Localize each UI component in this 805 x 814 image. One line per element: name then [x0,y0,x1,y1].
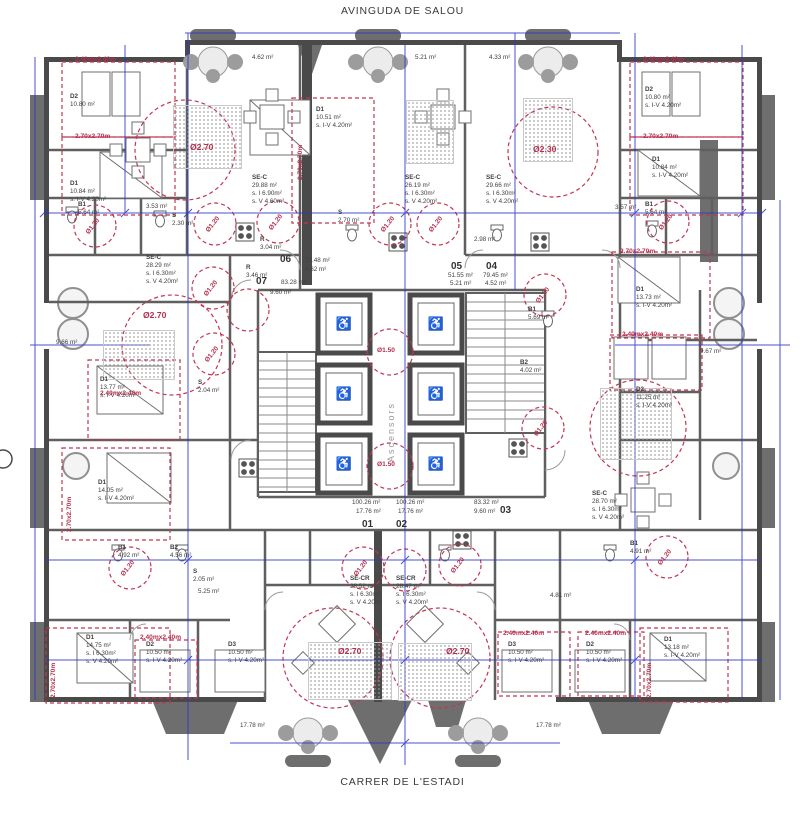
bed-size-tag: 2.40mx2.40m [75,56,116,63]
room-label: B15.64 m² [78,201,99,217]
wheelchair-icon: ♿ [334,386,354,402]
room-label: D113.73 m²s. I-V 4.20m² [636,286,672,310]
rug-area [406,100,454,164]
room-label: 2.98 m² [474,236,495,244]
unit-number: 01 [362,519,373,530]
bed-size-tag: 2.40mx2.40m [100,390,141,397]
unit-number: 05 [451,261,462,272]
room-label: SE-C26.19 m²s. I 6.30m²s. V 4.20m² [405,174,437,205]
unit-terrace-area: 4.62 m² [305,266,326,273]
unit-area: 100.26 m² [396,499,424,506]
wheelchair-icon: ♿ [426,386,446,402]
room-label: D110.84 m²s. I-V 4.20m² [652,156,688,180]
room-label: D114.05 m²s. I-V 4.20m² [98,479,134,503]
bed-size-tag: 2.70x2.70m [643,133,678,140]
room-label: S2.04 m² [198,379,219,395]
room-label: SE-CR28.52 m²s. I 6.30m²s. V 4.20m² [350,575,382,606]
clearance-label: Ø1.50 [377,461,395,468]
bed-size-tag: 2.70x2.70m [646,663,653,698]
room-label: 5.25 m² [198,588,219,596]
room-label: SE-C29.88 m²s. I 6.90m²s. V 4.60m² [252,174,284,205]
room-label: 9.67 m² [700,348,721,356]
room-label: D310.50 m²s. I-V 4.20m² [508,641,544,665]
unit-terrace-area: 17.76 m² [356,508,381,515]
street-name-top: AVINGUDA DE SALOU [0,5,805,17]
rug-area [103,330,175,380]
room-label: B15.69 m² [528,306,549,322]
bed-size-tag: 2.40mx2.40m [585,630,626,637]
room-label: S2.30 m² [172,212,193,228]
room-label: B14.92 m² [118,544,139,560]
unit-area: 79.45 m² [483,272,508,279]
elevator-lobby-label: Ascensors [386,402,396,462]
room-label: SE-C29.66 m²s. I 6.30m²s. V 4.20m² [486,174,518,205]
room-label: 3.53 m² [146,203,167,211]
room-label: R3.46 m² [246,264,267,280]
wheelchair-icon: ♿ [334,456,354,472]
bed-size-tag: 2.40mx2.40m [622,331,663,338]
street-name-bottom: CARRER DE L'ESTADI [0,776,805,788]
terrace-label: 4.33 m² [489,54,510,62]
unit-area: 72.48 m² [305,257,330,264]
room-label: D211.25 m²s. I-V 4.20m² [636,386,672,410]
unit-terrace-area: 9.60 m² [270,289,291,296]
room-label: D210.80 m² [70,93,95,109]
room-label: D210.50 m²s. I-V 4.20m² [146,641,182,665]
room-label: D114.75 m²s. I 6.30m²s. V 4.20m² [86,634,118,665]
room-label: D210.50 m²s. I-V 4.20m² [586,641,622,665]
clearance-label: Ø2.70 [190,142,213,152]
terrace-label: 5.21 m² [415,54,436,62]
unit-area: 100.26 m² [352,499,380,506]
room-label: S2.70 m² [338,209,359,225]
bed-size-tag: 2.70x2.70m [620,248,655,255]
bed-size-tag: 2.70x2.70m [66,497,73,532]
unit-number: 02 [396,519,407,530]
room-label: B14.91 m² [630,540,651,556]
clearance-label: Ø2.30 [533,144,556,154]
room-label: B15.64 m² [645,201,666,217]
unit-area: 83.32 m² [474,499,499,506]
furniture [77,72,706,692]
room-label: SE-CR28.47 m²s. I 6.30m²s. V 4.20m² [396,575,428,606]
bed-size-tag: 2.40mx2.40m [503,630,544,637]
bed-size-tag: 2.40mx2.40m [643,56,684,63]
room-label: 9.66 m² [56,339,77,347]
room-label: D113.18 m²s. I-V 4.20m² [664,636,700,660]
wheelchair-icon: ♿ [426,316,446,332]
unit-number: 03 [500,505,511,516]
unit-number: 04 [486,261,497,272]
bed-size-tag: 2.70x2.70m [297,145,304,180]
bed-size-tag: 2.70x2.70m [50,663,57,698]
room-label: D110.51 m²s. I-V 4.20m² [316,106,352,130]
room-label: 4.81 m² [550,592,571,600]
section-marker [0,450,12,468]
room-label: R3.04 m² [260,236,281,252]
bed-size-tag: 2.70x2.70m [75,133,110,140]
floor-plan-canvas: AVINGUDA DE SALOU CARRER DE L'ESTADI [0,0,805,814]
wheelchair-icon: ♿ [334,316,354,332]
room-label: B24.56 m² [170,544,191,560]
room-label: D310.50 m²s. I-V 4.20m² [228,641,264,665]
room-label: SE-C28.70 m²s. I 6.30m²s. V 4.20m² [592,490,624,521]
unit-number: 06 [280,254,291,265]
rug-area [173,105,242,169]
room-label: S2.05 m² [193,568,214,584]
room-label: B24.02 m² [520,359,541,375]
unit-terrace-area: 17.76 m² [398,508,423,515]
clearance-label: Ø2.70 [338,646,361,656]
bed-size-tag: 2.40mx2.40m [140,634,181,641]
unit-area: 83.28 m² [281,279,306,286]
clearance-label: Ø2.70 [143,310,166,320]
unit-terrace-area: 4.52 m² [485,280,506,287]
room-label: 3.57 m² [615,204,636,212]
wheelchair-icon: ♿ [426,456,446,472]
terrace-label: 4.62 m² [252,54,273,62]
unit-terrace-area: 5.21 m² [450,280,471,287]
terrace-label: 17.78 m² [536,722,561,730]
room-label: D210.80 m²s. I-V 4.20m² [645,86,681,110]
unit-terrace-area: 9.60 m² [474,508,495,515]
clearance-label: Ø1.50 [377,347,395,354]
terrace-label: 17.78 m² [240,722,265,730]
room-label: SE-C28.29 m²s. I 6.30m²s. V 4.20m² [146,254,178,285]
clearance-label: Ø2.70 [446,646,469,656]
unit-area: 51.55 m² [448,272,473,279]
